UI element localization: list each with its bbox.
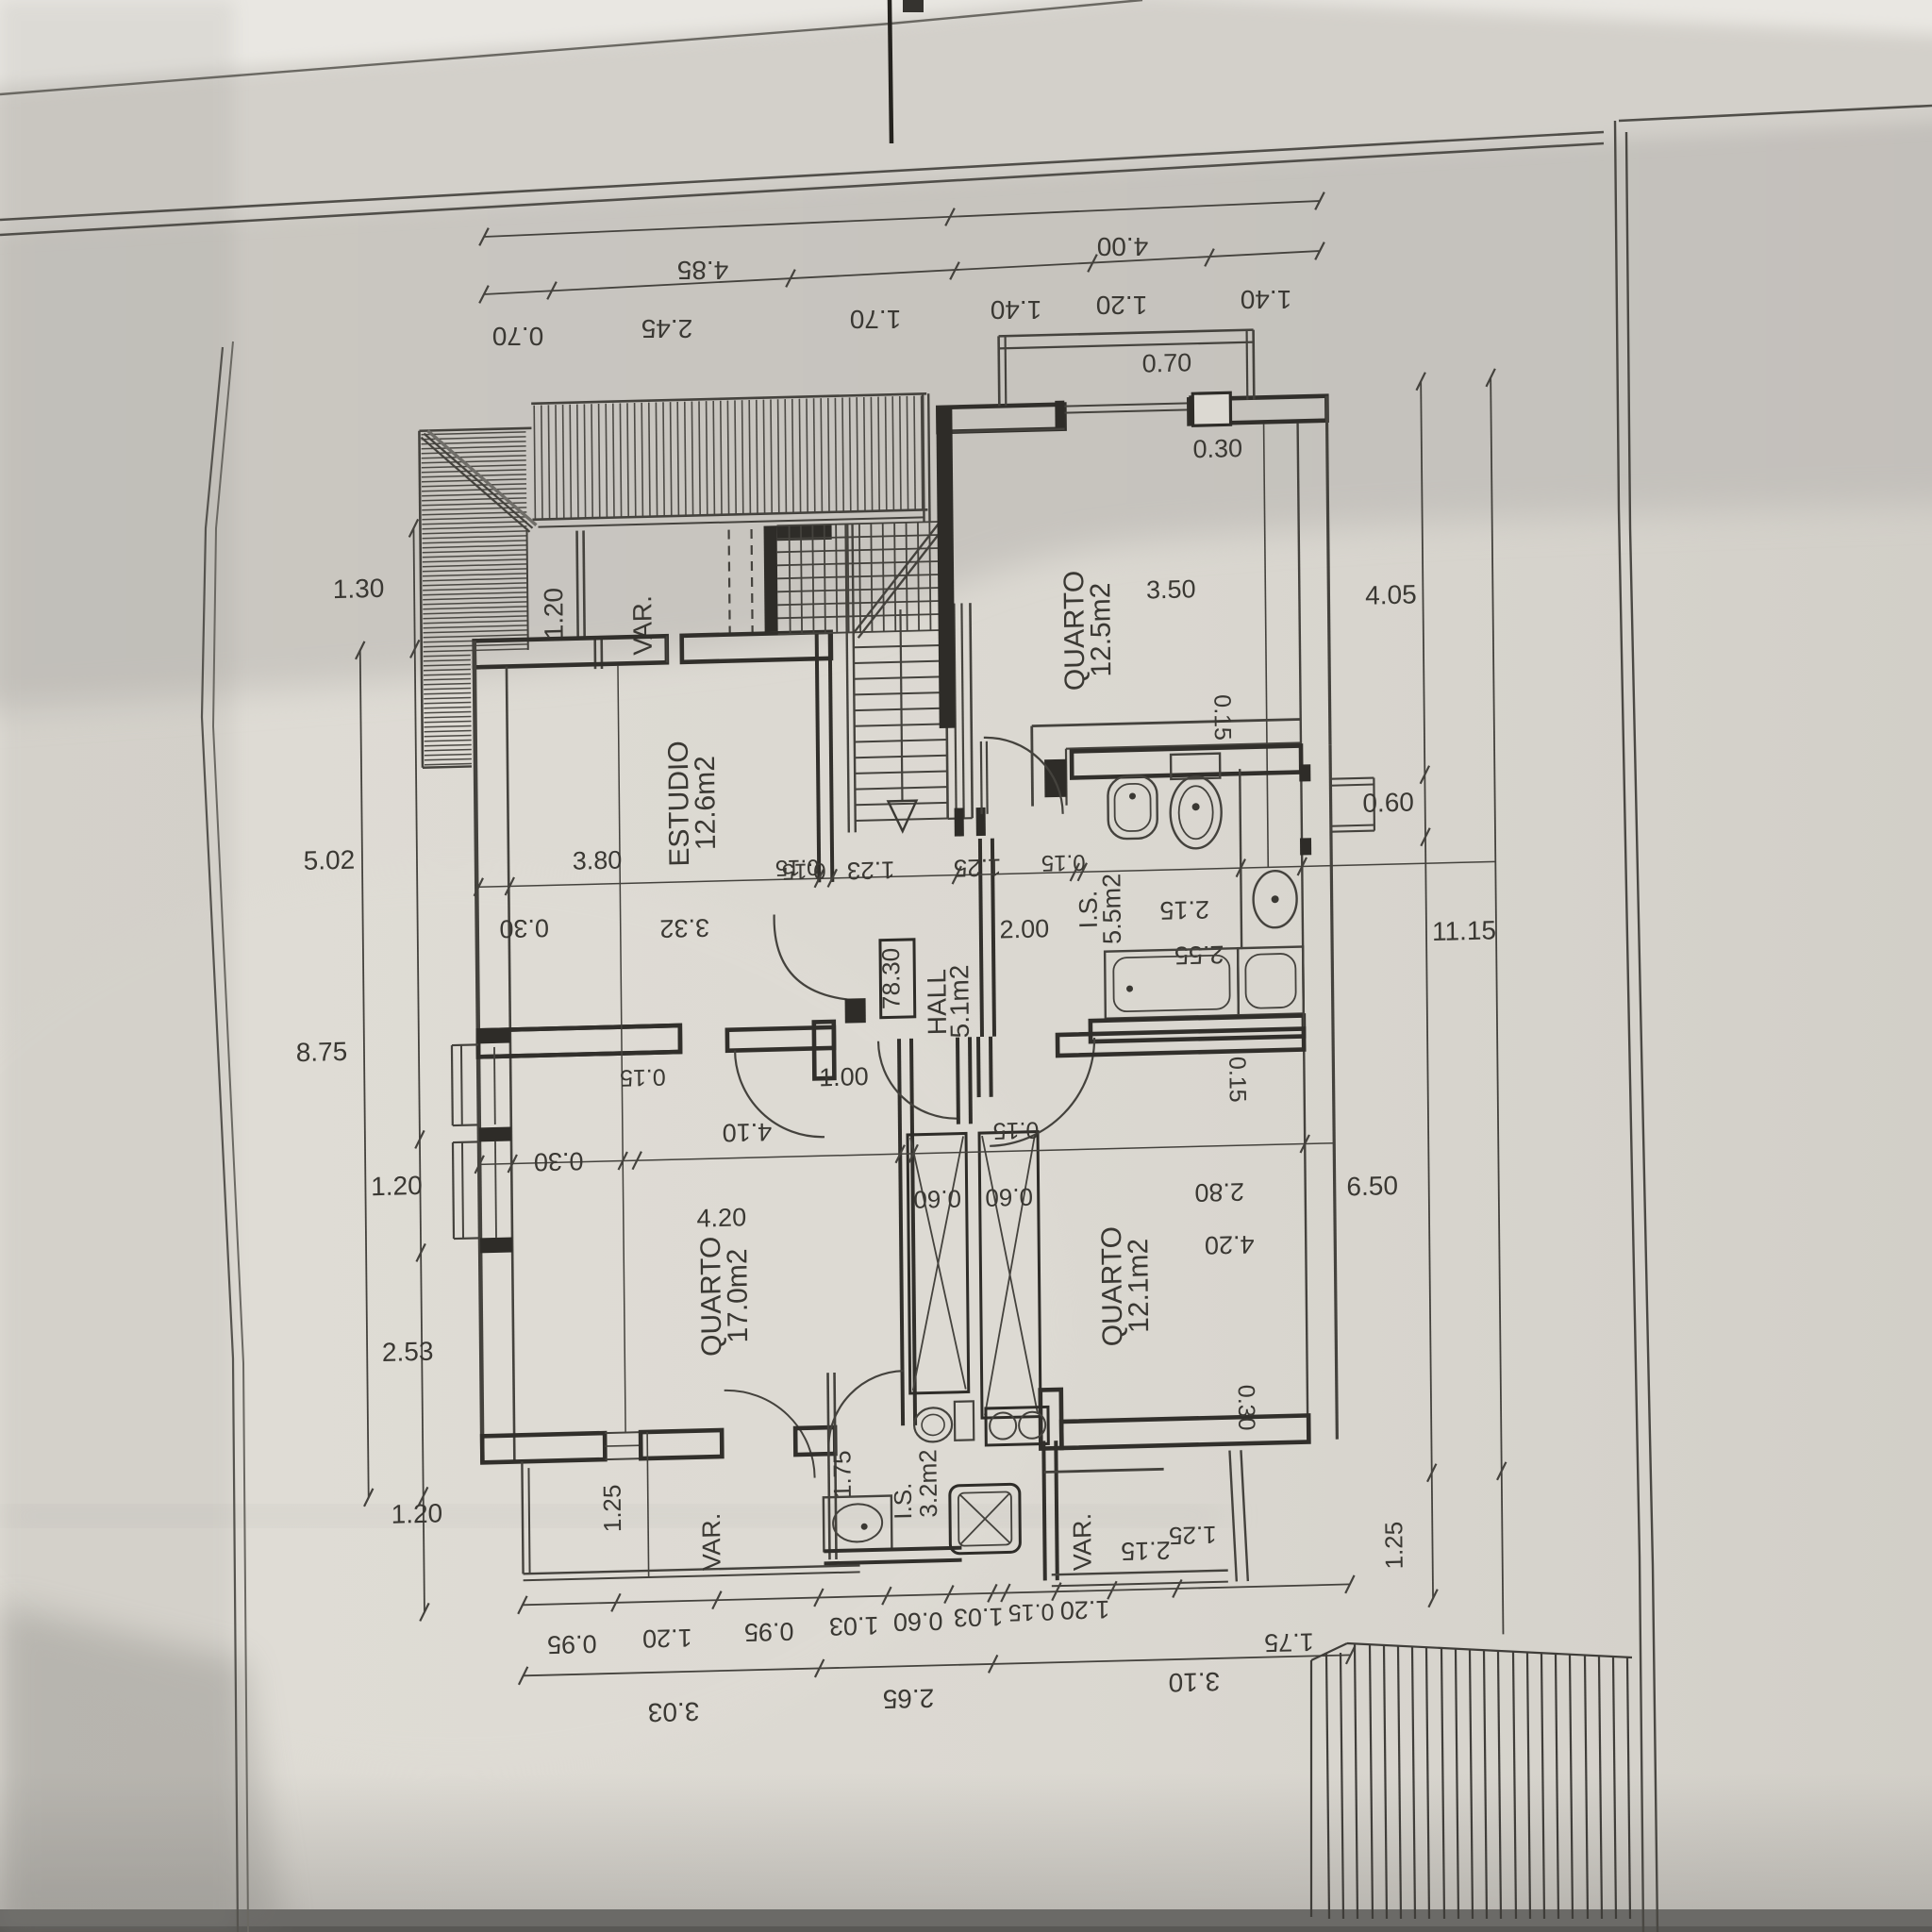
svg-text:12.6m2: 12.6m2 [690, 756, 722, 851]
svg-text:1.25: 1.25 [1169, 1521, 1217, 1550]
svg-text:1.70: 1.70 [850, 305, 902, 334]
svg-text:VAR.: VAR. [1068, 1513, 1097, 1572]
svg-text:1.40: 1.40 [991, 295, 1042, 325]
svg-text:0.30: 0.30 [499, 913, 549, 942]
svg-text:0.30: 0.30 [534, 1147, 584, 1176]
svg-text:0.15: 0.15 [775, 854, 820, 880]
svg-text:6.50: 6.50 [1346, 1171, 1398, 1201]
svg-text:0.95: 0.95 [547, 1629, 597, 1658]
svg-text:1.25: 1.25 [954, 853, 1002, 882]
svg-text:0.15: 0.15 [1224, 1057, 1250, 1103]
svg-text:1.23: 1.23 [847, 856, 895, 885]
svg-text:12.5m2: 12.5m2 [1085, 582, 1117, 677]
svg-text:2.53: 2.53 [382, 1337, 434, 1367]
svg-text:1.20: 1.20 [1060, 1595, 1110, 1624]
svg-text:3.50: 3.50 [1146, 575, 1196, 604]
svg-text:3.10: 3.10 [1168, 1667, 1220, 1697]
svg-text:0.60: 0.60 [893, 1607, 943, 1636]
svg-text:0.30: 0.30 [1233, 1384, 1259, 1430]
svg-text:0.15: 0.15 [1008, 1598, 1055, 1625]
svg-text:1.20: 1.20 [371, 1171, 423, 1201]
svg-text:4.20: 4.20 [696, 1203, 746, 1232]
svg-text:0.30: 0.30 [1192, 434, 1242, 463]
svg-text:0.70: 0.70 [492, 322, 544, 351]
svg-text:2.80: 2.80 [1194, 1177, 1244, 1207]
svg-text:1.75: 1.75 [827, 1450, 857, 1498]
svg-text:0.60: 0.60 [985, 1183, 1033, 1212]
svg-text:4.85: 4.85 [677, 256, 729, 285]
svg-text:3.80: 3.80 [573, 845, 623, 874]
svg-text:1.20: 1.20 [1096, 291, 1148, 320]
svg-text:1.75: 1.75 [1264, 1627, 1314, 1657]
svg-text:2.45: 2.45 [641, 314, 693, 343]
svg-text:11.15: 11.15 [1432, 915, 1496, 946]
svg-text:17.0m2: 17.0m2 [722, 1248, 754, 1343]
svg-text:1.40: 1.40 [1241, 285, 1292, 314]
svg-text:2.00: 2.00 [999, 914, 1049, 943]
svg-text:1.20: 1.20 [539, 588, 569, 640]
svg-text:12.1m2: 12.1m2 [1123, 1238, 1155, 1333]
svg-text:5.02: 5.02 [304, 845, 356, 875]
svg-text:0.60: 0.60 [1362, 787, 1414, 817]
svg-text:0.95: 0.95 [744, 1617, 794, 1646]
svg-text:3.03: 3.03 [648, 1697, 700, 1727]
svg-text:1.25: 1.25 [598, 1484, 627, 1532]
svg-text:VAR.: VAR. [697, 1512, 726, 1571]
svg-text:1.25: 1.25 [1379, 1522, 1408, 1570]
svg-text:VAR.: VAR. [627, 595, 658, 656]
svg-text:1.20: 1.20 [391, 1498, 443, 1528]
svg-text:5.1m2: 5.1m2 [944, 964, 974, 1039]
svg-text:4.20: 4.20 [1205, 1230, 1255, 1259]
svg-text:0.15: 0.15 [1208, 694, 1235, 741]
svg-text:1.00: 1.00 [819, 1062, 869, 1091]
svg-text:1.20: 1.20 [642, 1624, 692, 1653]
svg-text:I.S.: I.S. [889, 1482, 917, 1520]
svg-text:1.03: 1.03 [829, 1611, 879, 1641]
svg-text:0.15: 0.15 [1041, 849, 1086, 875]
svg-text:0.60: 0.60 [913, 1185, 961, 1214]
svg-text:4.10: 4.10 [723, 1118, 773, 1147]
svg-text:2.15: 2.15 [1159, 895, 1209, 924]
svg-text:5.5m2: 5.5m2 [1097, 874, 1126, 945]
svg-text:0.15: 0.15 [620, 1063, 666, 1091]
svg-text:0.15: 0.15 [993, 1117, 1040, 1144]
svg-text:2.65: 2.65 [883, 1683, 935, 1713]
svg-text:78.30: 78.30 [876, 947, 906, 1009]
svg-text:4.00: 4.00 [1097, 232, 1149, 261]
svg-text:1.03: 1.03 [954, 1603, 1004, 1632]
svg-text:8.75: 8.75 [296, 1037, 348, 1067]
svg-text:4.05: 4.05 [1365, 579, 1417, 609]
svg-text:3.32: 3.32 [659, 913, 709, 942]
svg-text:2.15: 2.15 [1121, 1536, 1171, 1565]
svg-text:3.2m2: 3.2m2 [913, 1449, 942, 1518]
svg-text:0.70: 0.70 [1141, 348, 1191, 377]
svg-text:1.30: 1.30 [333, 574, 385, 604]
